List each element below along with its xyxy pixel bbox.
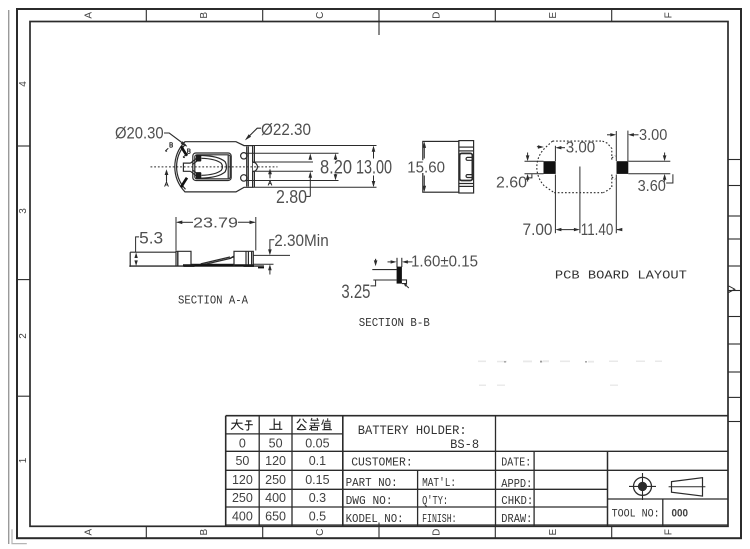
svg-text:000: 000 [672,508,689,520]
svg-text:3.00: 3.00 [639,127,668,144]
svg-text:11.40: 11.40 [581,221,614,239]
svg-text:DWG NO:: DWG NO: [346,494,393,508]
svg-text:BATTERY HOLDER:: BATTERY HOLDER: [358,423,467,438]
svg-text:13.00: 13.00 [356,158,392,179]
svg-text:APPD:: APPD: [501,477,532,491]
svg-text:KODEL NO:: KODEL NO: [346,512,404,526]
svg-text:2.30Min: 2.30Min [274,232,328,250]
svg-text:E: E [548,12,559,19]
svg-text:1: 1 [18,457,29,463]
svg-text:CHKD:: CHKD: [501,494,533,508]
svg-text:C: C [315,12,326,19]
svg-text:FINISH:: FINISH: [422,512,457,526]
svg-text:8.20: 8.20 [320,158,352,179]
svg-text:2.80: 2.80 [276,186,307,207]
svg-text:Q'TY:: Q'TY: [422,494,448,508]
svg-text:0.3: 0.3 [309,491,326,505]
svg-text:SECTION B-B: SECTION B-B [359,317,430,330]
svg-text:650: 650 [265,510,286,524]
svg-text:0: 0 [239,436,246,450]
svg-text:PCB BOARD LAYOUT: PCB BOARD LAYOUT [555,268,687,282]
svg-text:A: A [84,529,95,536]
svg-text:Ø20.30: Ø20.30 [115,125,164,143]
svg-text:1.60±0.15: 1.60±0.15 [411,253,478,270]
svg-text:120: 120 [265,454,286,468]
svg-text:3.00: 3.00 [566,140,596,157]
svg-text:120: 120 [232,473,253,487]
svg-text:0.15: 0.15 [305,473,329,487]
svg-text:DRAW:: DRAW: [501,512,532,526]
svg-text:2.60: 2.60 [496,175,527,192]
svg-text:23.79: 23.79 [193,215,238,232]
svg-text:5.3: 5.3 [139,229,163,247]
svg-text:TOOL NO:: TOOL NO: [612,508,660,520]
svg-text:E: E [548,529,559,536]
svg-text:C: C [315,529,326,536]
svg-text:0.5: 0.5 [309,510,326,524]
svg-text:A: A [84,12,95,19]
svg-text:50: 50 [235,454,249,468]
svg-text:DATE:: DATE: [501,456,531,470]
svg-text:MAT'L:: MAT'L: [422,476,456,490]
svg-text:3.25: 3.25 [341,282,370,303]
svg-text:400: 400 [232,510,253,524]
svg-text:250: 250 [232,491,253,505]
svg-text:0.05: 0.05 [305,436,329,450]
svg-text:PART NO:: PART NO: [346,476,398,490]
svg-text:4: 4 [18,81,29,87]
svg-text:3.60: 3.60 [638,178,667,195]
svg-text:D: D [432,12,443,19]
svg-text:CUSTOMER:: CUSTOMER: [351,456,413,470]
svg-text:0.1: 0.1 [309,454,326,468]
svg-text:50: 50 [269,436,283,450]
svg-text:7.00: 7.00 [523,221,553,239]
svg-text:250: 250 [265,473,286,487]
svg-text:F: F [664,529,675,535]
svg-text:B: B [199,529,210,536]
svg-text:F: F [664,12,675,18]
svg-text:400: 400 [265,491,286,505]
svg-text:Ø22.30: Ø22.30 [261,121,311,139]
svg-text:SECTION A-A: SECTION A-A [178,295,248,308]
svg-text:BS-8: BS-8 [450,437,479,452]
svg-text:D: D [432,529,443,536]
svg-text:3: 3 [18,208,29,214]
svg-text:15.60: 15.60 [407,159,445,176]
svg-text:B: B [199,12,210,19]
svg-text:2: 2 [18,333,29,339]
